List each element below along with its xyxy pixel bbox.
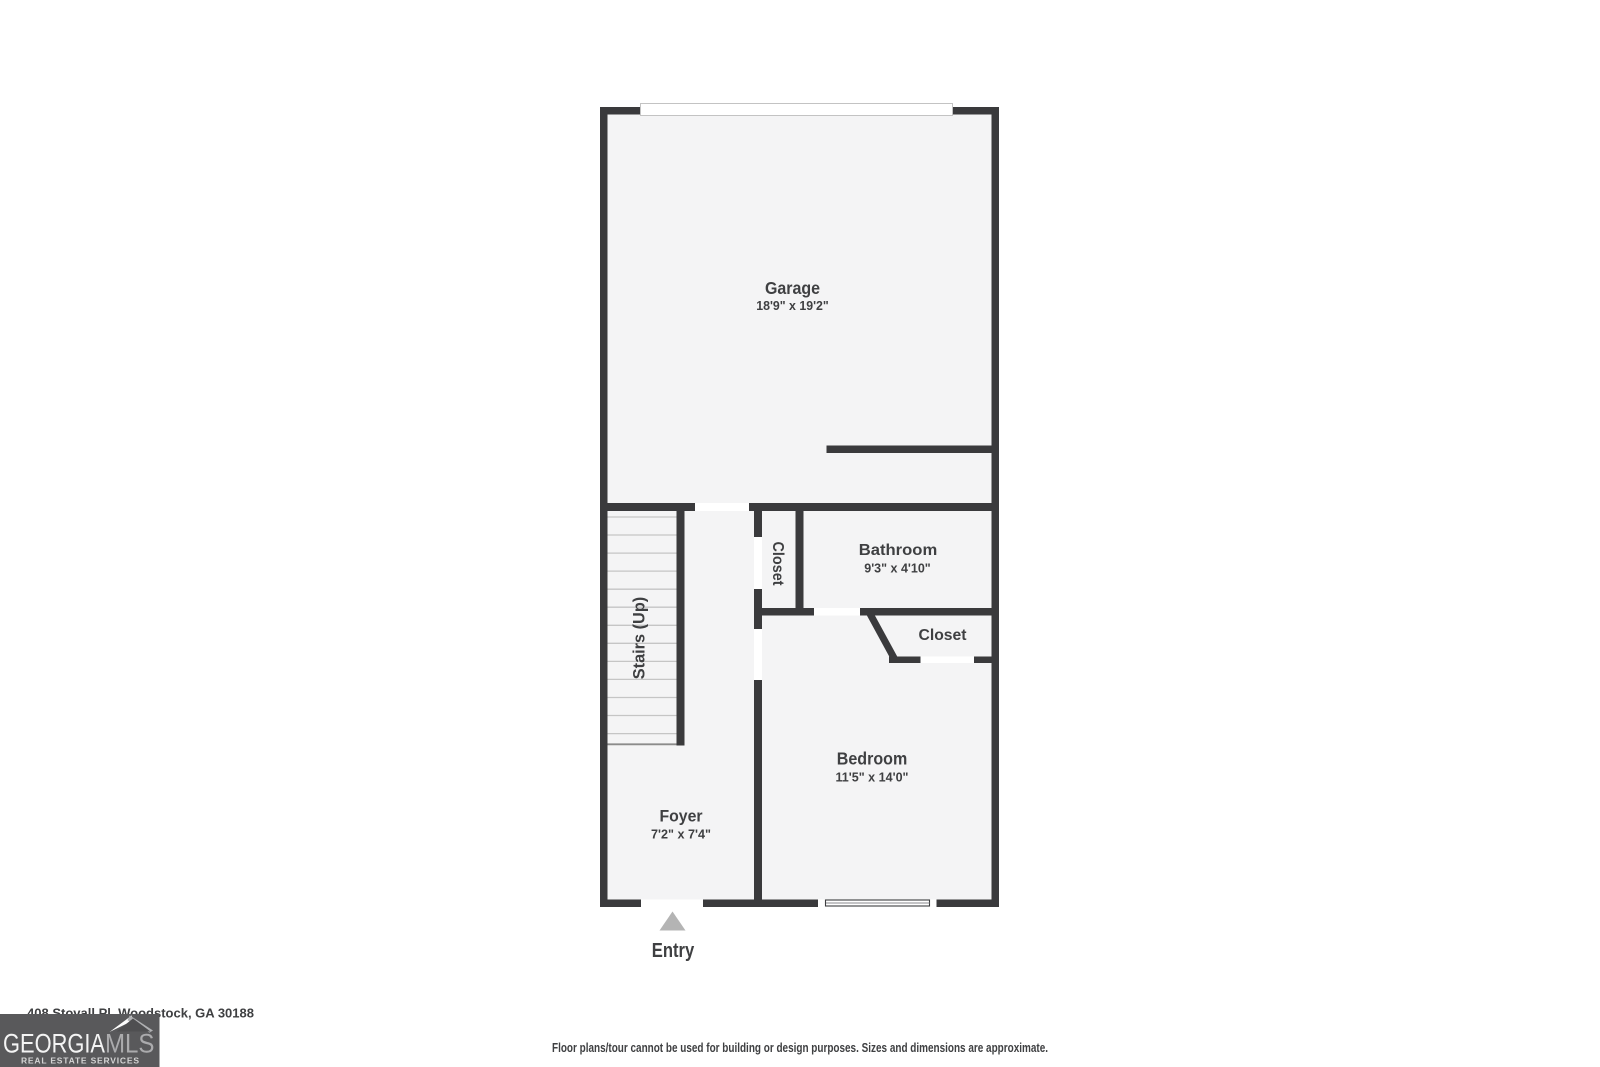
svg-text:REAL ESTATE SERVICES: REAL ESTATE SERVICES — [21, 1056, 139, 1066]
svg-text:Garage: Garage — [765, 278, 820, 298]
svg-text:Stairs (Up): Stairs (Up) — [630, 597, 649, 680]
svg-text:Closet: Closet — [769, 542, 786, 586]
svg-text:GEORGIA: GEORGIA — [3, 1028, 105, 1058]
svg-text:9'3" x 4'10": 9'3" x 4'10" — [864, 561, 931, 576]
svg-text:7'2" x 7'4": 7'2" x 7'4" — [651, 828, 711, 842]
svg-text:Bathroom: Bathroom — [859, 542, 938, 559]
svg-text:Bedroom: Bedroom — [837, 749, 908, 769]
svg-text:Floor plans/tour cannot be use: Floor plans/tour cannot be used for buil… — [552, 1040, 1048, 1055]
svg-text:11'5" x 14'0": 11'5" x 14'0" — [836, 770, 909, 784]
svg-text:Entry: Entry — [652, 940, 695, 962]
svg-text:Foyer: Foyer — [660, 807, 704, 825]
svg-text:18'9" x 19'2": 18'9" x 19'2" — [756, 299, 829, 313]
svg-text:Closet: Closet — [919, 627, 967, 644]
svg-text:MLS: MLS — [105, 1028, 155, 1058]
